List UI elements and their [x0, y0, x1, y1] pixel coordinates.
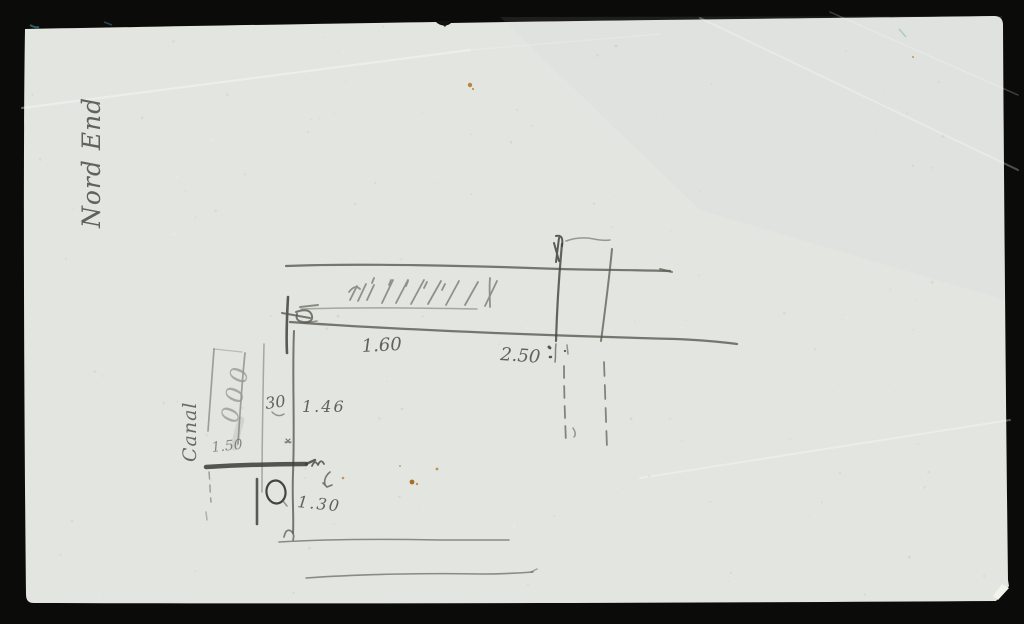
margin-note-vertical: Nord End: [77, 97, 106, 229]
dim-2-50: 2.50: [499, 344, 541, 368]
dim-1-60: 1.60: [361, 334, 402, 357]
canal-note-vertical: Canal: [179, 401, 201, 462]
column-line-dark: [293, 331, 294, 533]
dim-30: 30: [264, 391, 287, 413]
sketch-canvas: Nord End Canal 000 1.60 2.50 30 1.46 1.5…: [0, 0, 1024, 624]
dim-1-50-rotated: 1.50: [211, 437, 244, 456]
scan-photo: Nord End Canal 000 1.60 2.50 30 1.46 1.5…: [0, 0, 1024, 624]
paper-sheet: [24, 16, 1009, 603]
dim-1-46: 1.46: [302, 397, 346, 416]
